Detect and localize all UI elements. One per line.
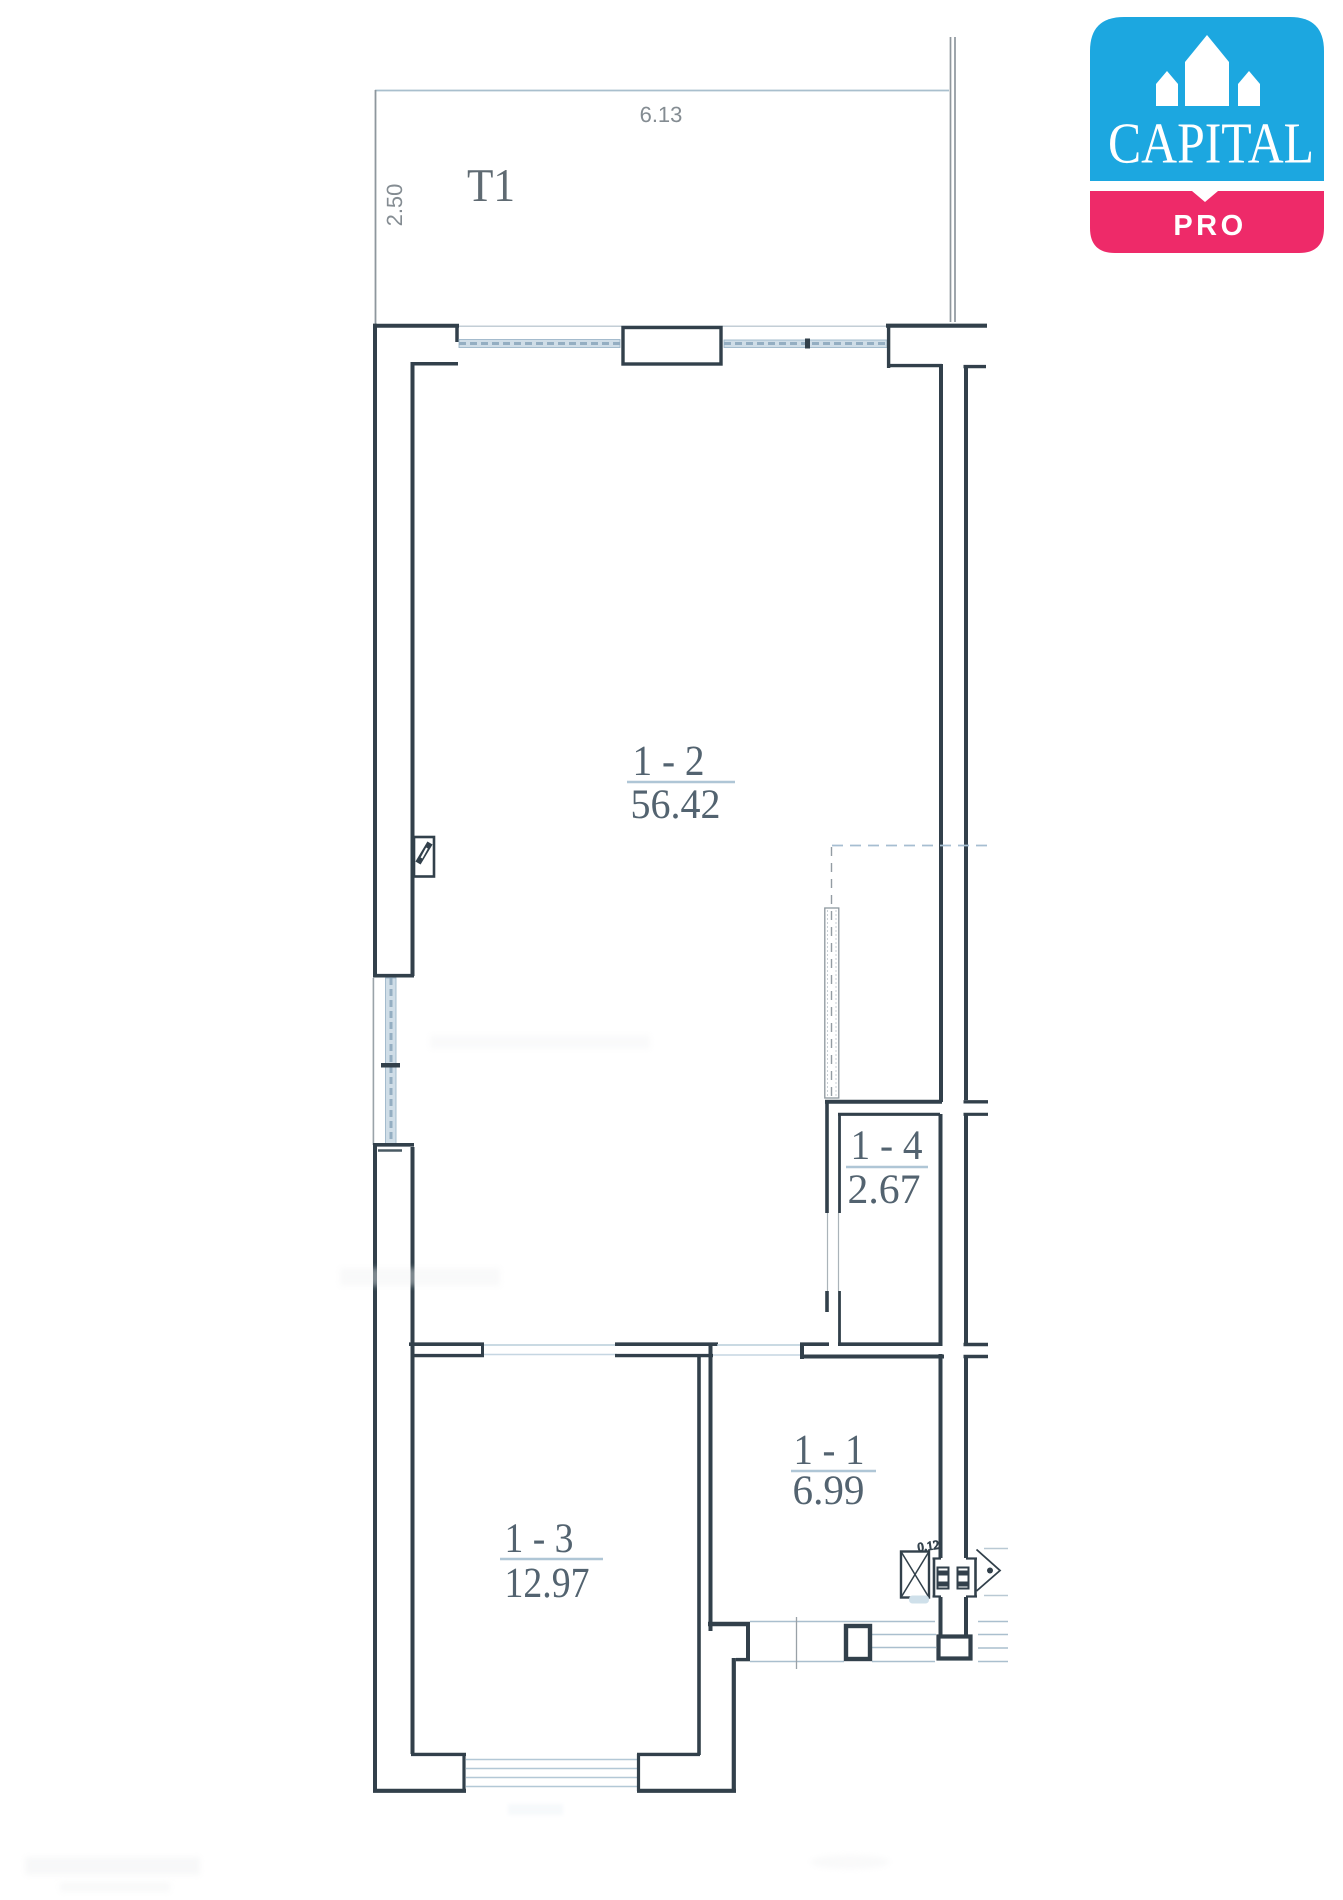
svg-text:PRO: PRO — [1173, 210, 1246, 242]
svg-text:2.67: 2.67 — [848, 1167, 921, 1213]
svg-text:1 - 4: 1 - 4 — [851, 1123, 923, 1169]
svg-text:56.42: 56.42 — [631, 782, 721, 828]
svg-text:1 - 1: 1 - 1 — [794, 1427, 865, 1474]
svg-text:6.13: 6.13 — [640, 102, 683, 127]
svg-text:1 - 2: 1 - 2 — [633, 738, 705, 785]
svg-text:12.97: 12.97 — [505, 1560, 590, 1607]
svg-text:1 - 3: 1 - 3 — [505, 1516, 574, 1562]
svg-text:T1: T1 — [467, 160, 515, 212]
svg-text:CAPITAL: CAPITAL — [1108, 111, 1314, 176]
svg-text:6.99: 6.99 — [793, 1468, 865, 1514]
svg-text:2.50: 2.50 — [382, 184, 407, 227]
